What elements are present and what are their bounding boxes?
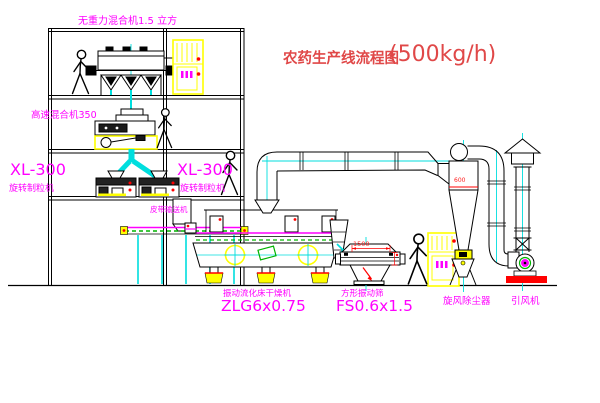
label-belt-conveyor: 皮带输送机 (150, 206, 188, 214)
label-granulator-model-left: XL-300 (10, 162, 66, 178)
drawing-title-capacity: (500kg/h) (389, 44, 496, 66)
label-granulator-model-right: XL-300 (177, 162, 233, 178)
gravity-free-mixer (86, 47, 176, 95)
label-granulator-name-right: 旋转制粒机 (180, 185, 225, 194)
high-speed-mixer (95, 109, 157, 149)
label-dryer-model: ZLG6x0.75 (221, 299, 306, 315)
indicator-light (197, 57, 201, 61)
worker-ground (408, 234, 426, 284)
dryer-feet (205, 267, 329, 283)
indicator-light (197, 72, 201, 76)
fan-base (506, 276, 547, 283)
label-cyclone: 旋风除尘器 (443, 297, 491, 307)
dryer-exhaust-duct (257, 152, 438, 200)
label-high-speed-mixer: 高速混合机350 (31, 111, 97, 121)
induced-draft-fan (506, 252, 547, 283)
indicator-light (452, 239, 456, 243)
label-fan: 引风机 (511, 297, 540, 307)
label-gravity-mixer: 无重力混合机1.5 立方 (78, 17, 177, 27)
granulator-left (96, 171, 136, 197)
drawing-title: 农药生产线流程图 (283, 52, 399, 67)
control-cabinet-upper (173, 40, 203, 94)
dim-screen-length: 1500 (353, 241, 370, 248)
cad-drawing-canvas: 农药生产线流程图 (500kg/h) 无重力混合机1.5 立方 高速混合机350… (0, 0, 600, 403)
label-screen-model: FS0.6x1.5 (336, 299, 413, 315)
mixer-drop-pipes (111, 90, 151, 110)
cabinet-marking (436, 261, 448, 268)
cabinet-marking (181, 71, 193, 78)
dim-cyclone-marking: 600 (454, 178, 465, 184)
worker-second-floor (157, 109, 171, 148)
granulator-right (139, 171, 179, 197)
rain-cap (505, 139, 540, 153)
label-granulator-name-left: 旋转制粒机 (9, 185, 54, 194)
vibrating-screen (336, 244, 406, 285)
downcomer-duct (479, 146, 509, 266)
